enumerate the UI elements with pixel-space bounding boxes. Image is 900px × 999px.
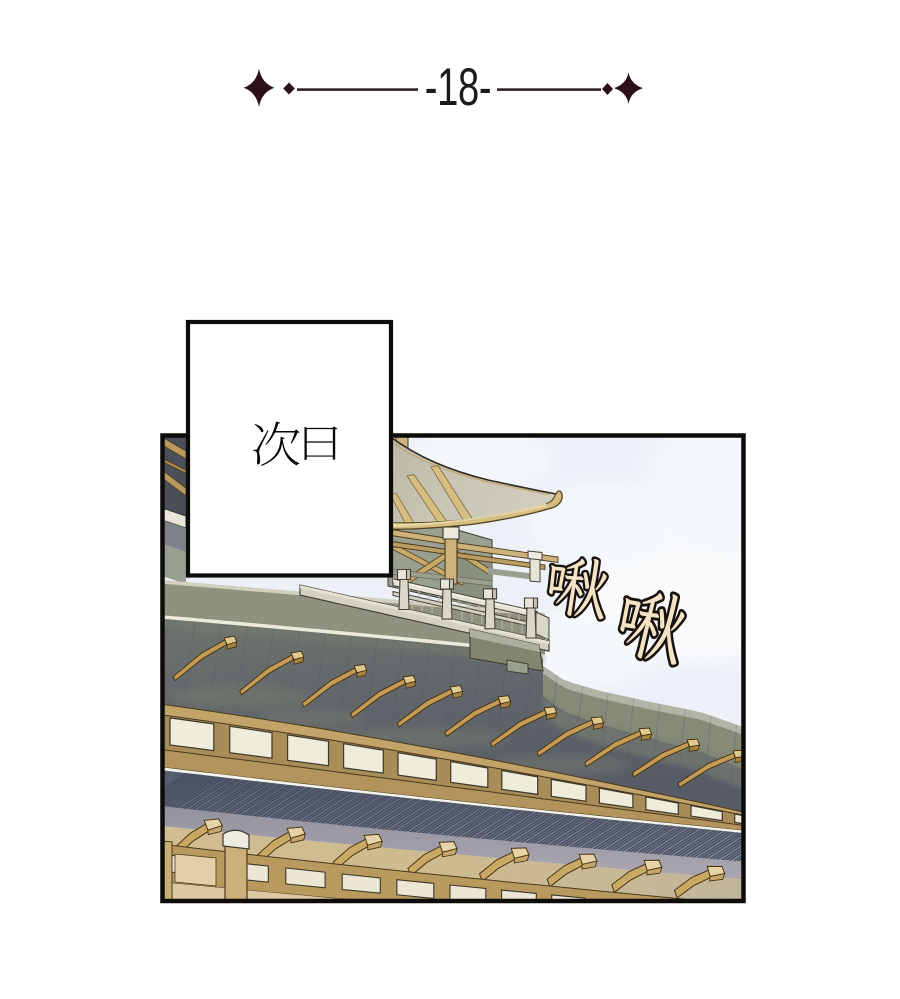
svg-text:-18-: -18- bbox=[425, 57, 491, 117]
